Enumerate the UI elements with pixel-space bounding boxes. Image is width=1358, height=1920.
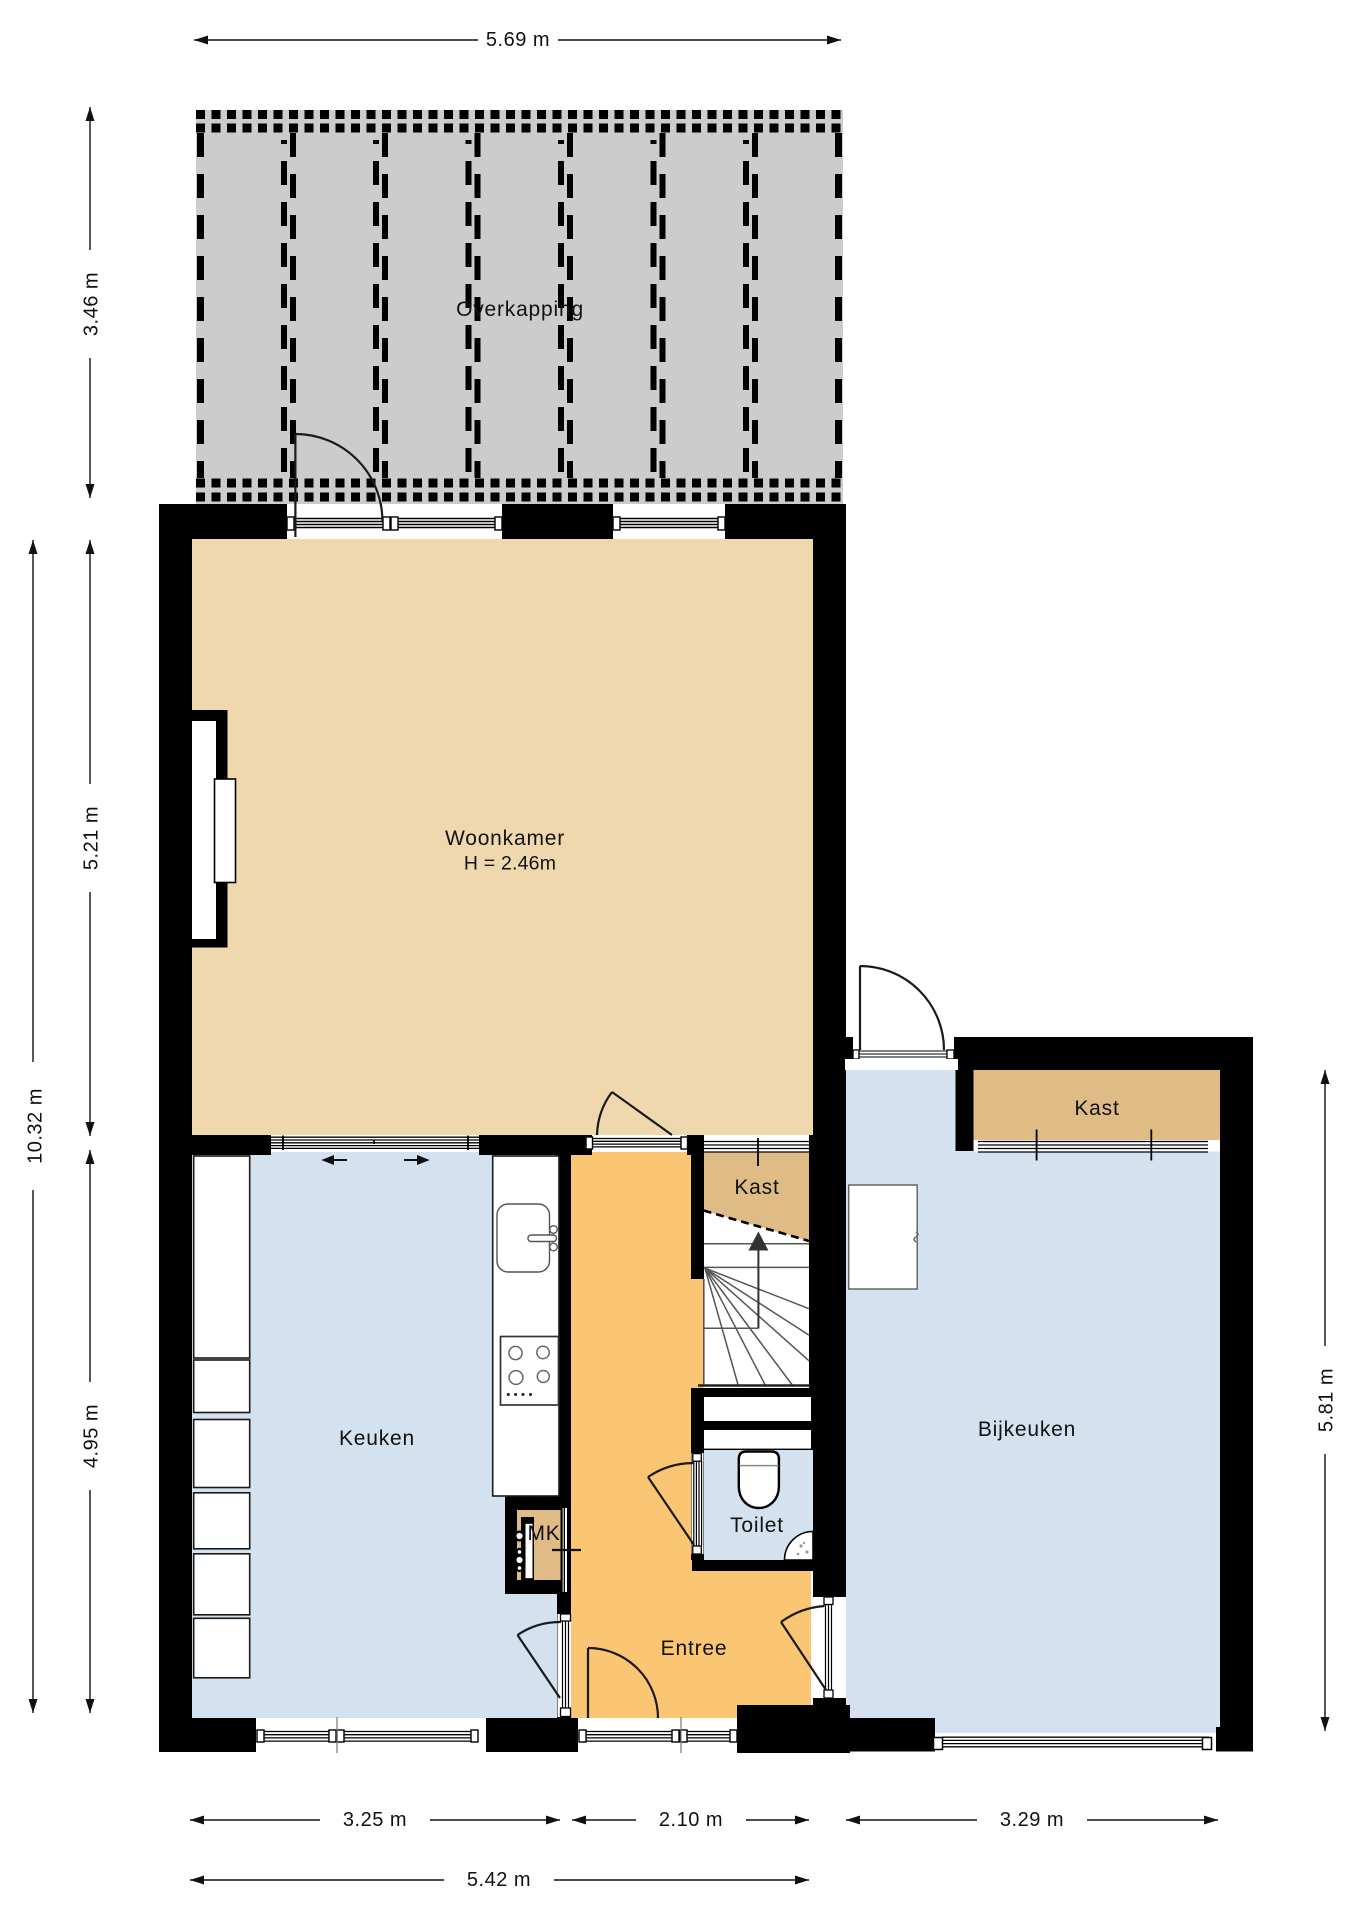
svg-text:3.46 m: 3.46 m [81, 272, 103, 336]
svg-text:Toilet: Toilet [730, 1514, 784, 1537]
svg-text:10.32 m: 10.32 m [25, 1088, 47, 1164]
svg-text:5.81 m: 5.81 m [1316, 1368, 1338, 1432]
svg-text:3.29 m: 3.29 m [1000, 1809, 1064, 1831]
svg-text:MK: MK [527, 1522, 560, 1545]
svg-text:4.95 m: 4.95 m [81, 1404, 103, 1468]
svg-text:H = 2.46m: H = 2.46m [464, 853, 556, 875]
svg-text:Woonkamer: Woonkamer [445, 827, 565, 850]
svg-text:3.25 m: 3.25 m [343, 1809, 407, 1831]
svg-text:Overkapping: Overkapping [456, 298, 584, 321]
svg-text:Kast: Kast [1074, 1097, 1119, 1120]
svg-text:2.10 m: 2.10 m [659, 1809, 723, 1831]
svg-text:5.21 m: 5.21 m [81, 806, 103, 870]
svg-text:5.42 m: 5.42 m [467, 1869, 531, 1891]
svg-text:5.69 m: 5.69 m [486, 29, 550, 51]
svg-text:Entree: Entree [661, 1637, 728, 1660]
svg-text:Kast: Kast [734, 1176, 779, 1199]
svg-text:Keuken: Keuken [339, 1427, 415, 1450]
svg-text:Bijkeuken: Bijkeuken [978, 1418, 1076, 1441]
